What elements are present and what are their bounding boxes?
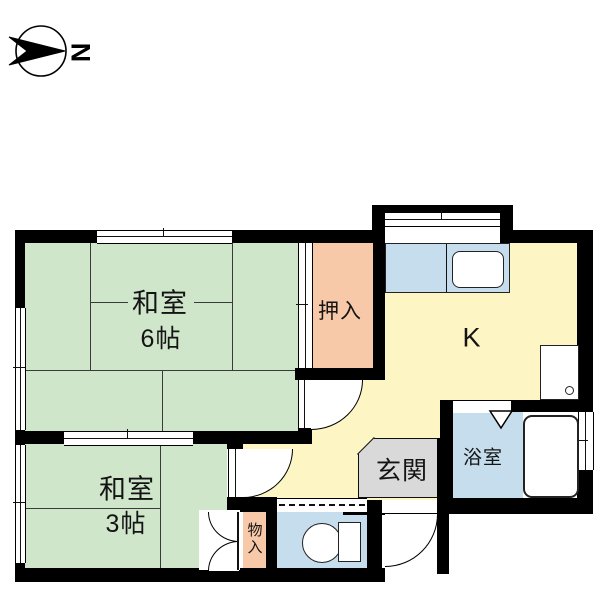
- wall: [440, 498, 593, 514]
- kitchen-sink: [452, 251, 504, 288]
- window: [578, 412, 594, 470]
- room-label-kitchen: K: [462, 323, 481, 354]
- wall: [193, 431, 312, 444]
- room-label-washitsu3-name: 和室: [99, 468, 155, 507]
- toilet-door-dashed-line: [279, 504, 365, 506]
- tatami-line: [194, 302, 232, 303]
- room-label-bathroom: 浴室: [463, 443, 503, 470]
- tatami-line: [90, 243, 91, 370]
- entrance-door-swing: [385, 514, 438, 567]
- wall: [15, 431, 64, 444]
- closet-sliding-door: [298, 243, 313, 368]
- north-label: N: [65, 43, 95, 63]
- wall: [15, 568, 385, 582]
- window: [97, 230, 232, 244]
- genkan-edge: [358, 454, 359, 498]
- sliding-partition: [64, 431, 193, 446]
- wall: [500, 205, 513, 243]
- wall: [295, 368, 385, 380]
- room-label-monoire: 物入: [244, 522, 265, 556]
- water-heater: [540, 345, 579, 400]
- window: [15, 308, 26, 430]
- wall: [266, 497, 277, 570]
- room-label-oshiire: 押入: [318, 295, 362, 325]
- bathtub: [523, 415, 579, 498]
- genkan-edge: [374, 438, 438, 439]
- window-sill: [385, 226, 500, 244]
- compass-icon: N: [2, 14, 112, 90]
- floor-plan: N: [0, 0, 600, 600]
- tatami-line: [90, 302, 128, 303]
- wall: [511, 400, 577, 412]
- bathroom-folding-door: [488, 410, 514, 430]
- toilet-tank: [338, 522, 361, 562]
- wall: [15, 230, 25, 308]
- genkan-edge: [358, 497, 438, 498]
- door-opening: [228, 449, 244, 497]
- room-label-washitsu3-size: 3帖: [106, 504, 147, 540]
- door-opening: [298, 380, 312, 428]
- entrance-door-opening: [382, 500, 437, 515]
- water-heater-knob: [565, 386, 574, 395]
- wall: [577, 230, 593, 412]
- room-label-genkan: 玄関: [376, 451, 428, 487]
- tatami-line: [232, 243, 233, 370]
- wall: [372, 205, 385, 243]
- tatami-line: [162, 371, 163, 432]
- wall: [440, 400, 453, 513]
- room-label-washitsu6-name: 和室: [132, 282, 188, 321]
- room-label-washitsu6-size: 6帖: [141, 319, 182, 355]
- wall: [298, 428, 312, 444]
- window: [15, 445, 26, 563]
- toilet-bowl: [302, 523, 342, 563]
- tatami-line: [160, 444, 161, 570]
- storage-door-face: [237, 512, 239, 570]
- wall: [373, 242, 385, 380]
